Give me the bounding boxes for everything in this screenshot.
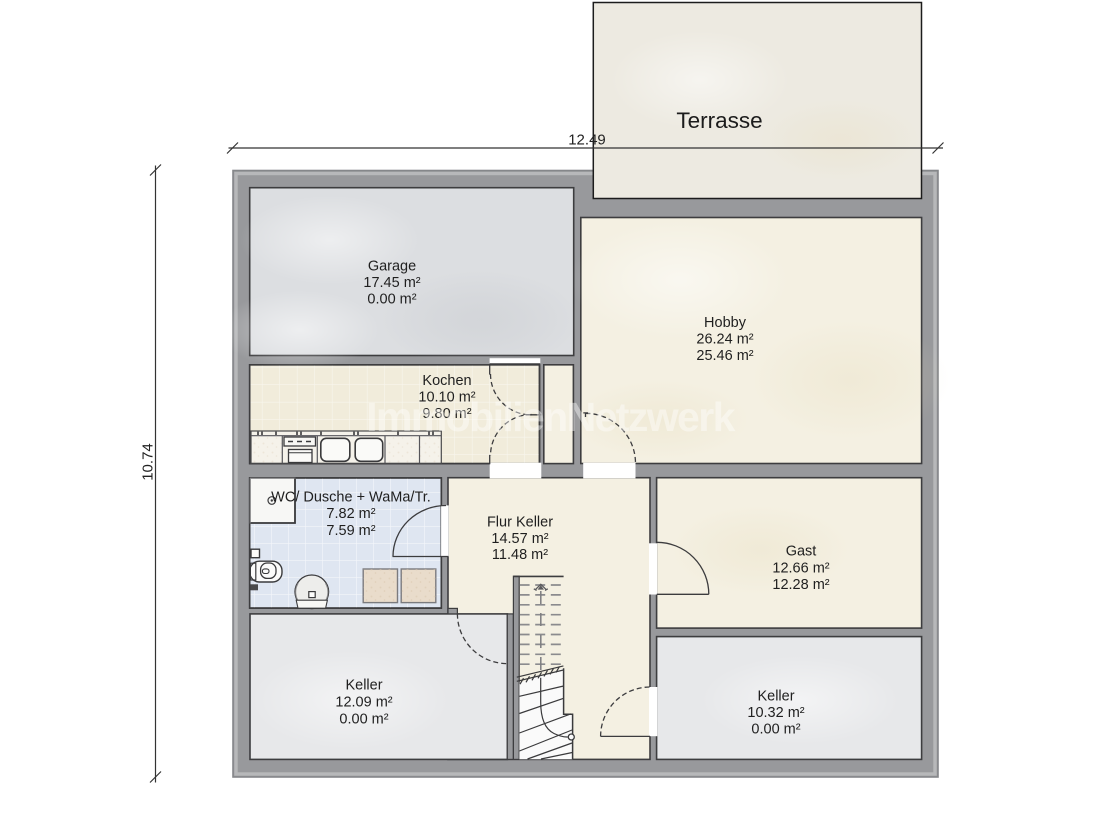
svg-text:12.66 m²: 12.66 m² [772,561,829,577]
svg-text:7.82 m²: 7.82 m² [326,506,375,522]
svg-text:11.48 m²: 11.48 m² [492,547,548,563]
svg-text:Keller: Keller [757,689,794,705]
svg-text:14.57 m²: 14.57 m² [491,531,548,547]
svg-text:Gast: Gast [786,544,817,560]
svg-text:7.59 m²: 7.59 m² [326,523,375,539]
svg-text:26.24 m²: 26.24 m² [696,332,753,348]
svg-text:ImmobilienNetzwerk: ImmobilienNetzwerk [366,394,735,440]
svg-text:Kochen: Kochen [422,373,471,389]
svg-text:25.46 m²: 25.46 m² [696,348,753,364]
svg-text:Flur Keller: Flur Keller [487,515,553,531]
svg-text:WC/ Dusche + WaMa/Tr.: WC/ Dusche + WaMa/Tr. [271,490,431,506]
svg-text:0.00 m²: 0.00 m² [751,722,800,738]
svg-text:0.00 m²: 0.00 m² [367,291,416,307]
svg-text:0.00 m²: 0.00 m² [339,712,388,728]
svg-text:Terrasse: Terrasse [676,108,762,133]
svg-text:12.09 m²: 12.09 m² [335,694,392,710]
svg-text:12.49: 12.49 [568,131,606,148]
svg-text:Hobby: Hobby [704,315,747,331]
svg-text:Keller: Keller [345,678,382,694]
svg-text:17.45 m²: 17.45 m² [363,275,420,291]
svg-text:Garage: Garage [368,259,416,275]
svg-text:10.32 m²: 10.32 m² [747,705,804,721]
svg-text:10.74: 10.74 [140,443,157,481]
svg-text:12.28 m²: 12.28 m² [772,577,829,593]
